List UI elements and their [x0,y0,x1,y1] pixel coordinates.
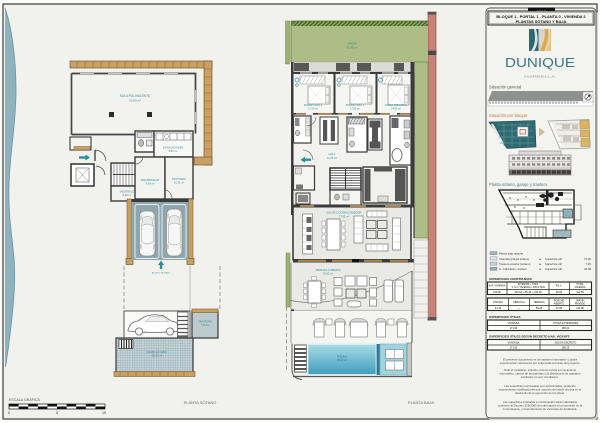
svg-text:P.E.C.: P.E.C. [556,285,563,288]
svg-text:17.05 m²: 17.05 m² [350,108,360,111]
svg-text:▼ S.C. VIVIENDA + ZZCC 50%: ▼ S.C. VIVIENDA + ZZCC 50% [511,286,546,289]
svg-text:5.60 m²: 5.60 m² [146,182,155,186]
svg-text:39.60 m²: 39.60 m² [337,359,347,362]
svg-text:SUPERFICIES CONSTRUIDAS: SUPERFICIES CONSTRUIDAS [489,277,532,281]
svg-text:PÉRGOLA: PÉRGOLA [513,301,525,304]
svg-text:RAMPA ACCESO: RAMPA ACCESO [147,350,167,354]
svg-text:INSTALACIONES: INSTALACIONES [163,146,184,150]
svg-text:9.80 m²: 9.80 m² [169,149,178,153]
svg-text:VESTÍBULO: VESTÍBULO [120,190,135,194]
svg-text:77.95 m²: 77.95 m² [339,215,349,219]
svg-text:110.88: 110.88 [576,307,584,310]
svg-text:248.36: 248.36 [493,291,501,294]
svg-text:Superficie útil: Superficie útil [545,267,562,271]
svg-text:55.00 m²: 55.00 m² [152,354,162,358]
svg-text:sanitarios no son vinculantes.: sanitarios no son vinculantes. [521,375,559,379]
svg-text:7.45: 7.45 [586,262,592,266]
svg-text:PRIVADO: PRIVADO [575,303,586,306]
svg-text:442.55: 442.55 [576,291,584,294]
svg-text:Planta bajo rasante: Planta bajo rasante [499,252,524,256]
svg-text:SEGÚN DECRETO: SEGÚN DECRETO [555,342,577,345]
svg-text:experimentar variaciones por e: experimentar variaciones por exigencias … [500,361,581,365]
svg-text:DUNIQUE: DUNIQUE [505,56,575,70]
svg-text:Situación por bloque: Situación por bloque [489,113,528,118]
svg-text:171.62: 171.62 [510,327,518,330]
svg-text:VIVIENDA: VIVIENDA [508,322,520,325]
svg-text:PISCINA: PISCINA [493,301,503,304]
svg-text:TERRAZA: TERRAZA [533,301,545,304]
svg-text:Superficie útil: Superficie útil [545,257,562,261]
svg-text:SUP. VIVIENDA: SUP. VIVIENDA [488,285,505,288]
svg-text:►: ► [539,262,542,266]
svg-text:MARBELLA: MARBELLA [524,75,555,79]
svg-text:VIVIENDA: VIVIENDA [574,286,586,289]
svg-text:---: --- [518,307,521,310]
svg-text:ÚTILES EXTERIORES: ÚTILES EXTERIORES [553,322,579,325]
svg-text:►: ► [539,257,542,261]
svg-text:29.80: 29.80 [556,291,563,294]
svg-text:59.28: 59.28 [536,307,543,310]
svg-text:85.00 m²: 85.00 m² [346,46,357,50]
svg-text:Trastero exterior (sótano): Trastero exterior (sótano) [499,262,531,266]
svg-text:10: 10 [102,411,106,415]
svg-text:VIVIENDA: VIVIENDA [508,342,520,345]
svg-text:Planta sótano, garaje y traste: Planta sótano, garaje y trastero [489,182,548,187]
svg-text:7.45 m²: 7.45 m² [201,324,210,327]
svg-text:17.20 m²: 17.20 m² [308,108,318,111]
svg-text:TRASTERO: TRASTERO [172,177,186,181]
svg-text:0: 0 [8,411,10,415]
svg-text:G. individual + trastero: G. individual + trastero [499,267,528,271]
svg-text:52.90 m²: 52.90 m² [323,273,333,276]
svg-text:SUPERFICIES ÚTILES SEGÚN DECRE: SUPERFICIES ÚTILES SEGÚN DECRETO HAB. VI… [489,334,570,339]
svg-text:SUPERFICIES ÚTILES: SUPERFICIES ÚTILES [489,314,521,319]
svg-text:Superficie útil: Superficie útil [545,262,562,266]
svg-text:►: ► [539,267,542,271]
svg-text:171.62: 171.62 [510,347,518,350]
svg-text:HALL: HALL [329,152,336,156]
svg-text:5.60 m²: 5.60 m² [123,193,132,197]
svg-text:Vivienda (planta sótano): Vivienda (planta sótano) [499,257,529,261]
svg-text:ESCALA GRÁFICA: ESCALA GRÁFICA [9,398,41,402]
svg-text:44.19: 44.19 [495,307,502,310]
svg-text:Situación general: Situación general [489,85,521,90]
svg-text:PLANTA BAJA: PLANTA BAJA [408,400,434,405]
svg-text:ABIERTO: ABIERTO [554,303,565,306]
svg-text:DISTRIBUIDOR: DISTRIBUIDOR [141,178,160,182]
svg-text:47.80: 47.80 [556,307,563,310]
svg-text:PLANTA SÓTANO: PLANTA SÓTANO [184,400,217,405]
svg-text:95.80 m²: 95.80 m² [129,99,141,103]
svg-text:TERRAZA CUBIERTA: TERRAZA CUBIERTA [315,268,341,272]
svg-text:103.63 + 35.46 + 103.08: 103.63 + 35.46 + 103.08 [514,291,542,294]
svg-text:34.08: 34.08 [584,267,591,271]
svg-text:10.35 m²: 10.35 m² [174,181,184,185]
svg-text:compraventa, y arrendamiento d: compraventa, y arrendamiento de vivienda… [503,407,578,411]
svg-text:desarrollo de la ejecución de: desarrollo de la ejecución de las obras. [515,391,565,395]
svg-text:188.15: 188.15 [562,347,570,350]
svg-text:PLANTAS SÓTANO Y BAJA: PLANTAS SÓTANO Y BAJA [516,19,567,24]
svg-text:ACCESO RODADO: ACCESO RODADO [152,272,171,275]
svg-text:73.00: 73.00 [584,257,591,261]
svg-text:11.35 m²: 11.35 m² [327,156,337,160]
svg-text:185.01: 185.01 [562,327,570,330]
svg-text:24.80 m²: 24.80 m² [391,108,401,111]
svg-text:SALA POLIVALENTE: SALA POLIVALENTE [120,94,150,98]
svg-text:5: 5 [56,411,58,415]
